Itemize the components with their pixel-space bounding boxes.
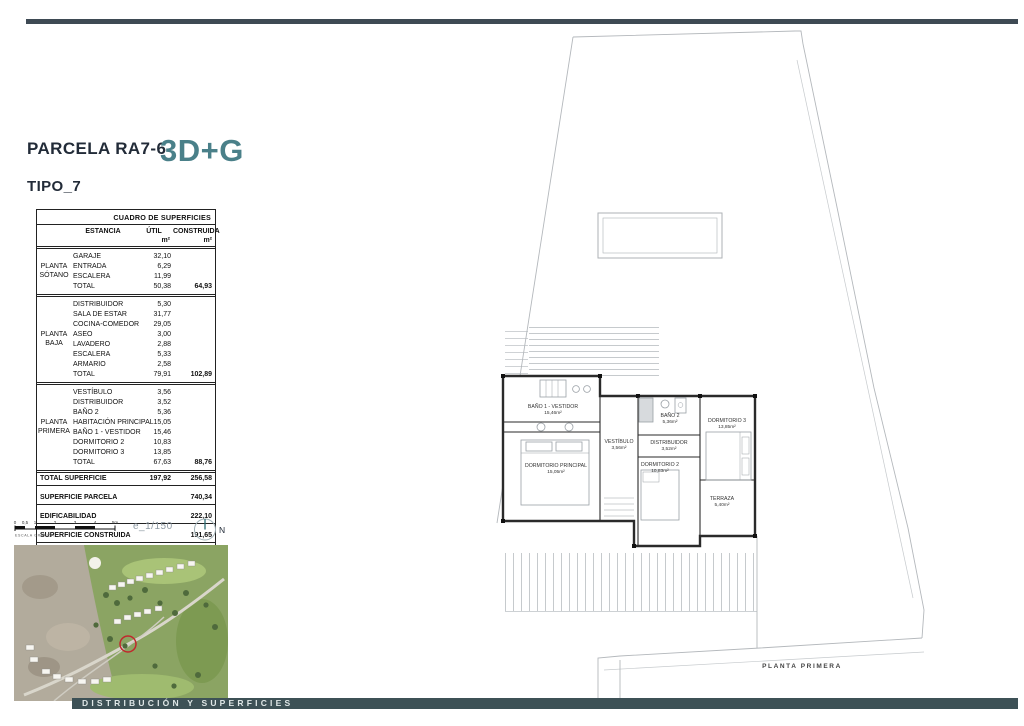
svg-text:13,85m²: 13,85m² (718, 424, 736, 430)
svg-text:5,36m²: 5,36m² (663, 419, 678, 425)
floor-plan-drawing: BAÑO 1 - VESTIDOR 15,46m² DORMITORIO PRI… (0, 0, 1024, 726)
parcel-boundary (497, 31, 924, 700)
room-dormitorio3: DORMITORIO 3 (708, 418, 746, 424)
house-outer-wall (503, 376, 755, 546)
svg-text:3,52m²: 3,52m² (662, 446, 677, 452)
plan-caption: PLANTA PRIMERA (762, 663, 842, 670)
svg-text:5,40m²: 5,40m² (715, 502, 730, 508)
room-banio2: BAÑO 2 (660, 412, 679, 419)
room-dormitorio2: DORMITORIO 2 (641, 462, 679, 468)
plan-sheet: PARCELA RA7-6 3D+G TIPO_7 CUADRO DE SUPE… (0, 0, 1024, 726)
footer-bar: DISTRIBUCIÓN Y SUPERFICIES (72, 698, 1018, 709)
svg-text:3,56m²: 3,56m² (612, 445, 627, 451)
room-distribuidor: DISTRIBUIDOR (650, 440, 687, 446)
room-dormitorio-principal: DORMITORIO PRINCIPAL (525, 463, 587, 469)
svg-text:15,46m²: 15,46m² (544, 410, 562, 416)
room-banio1-vestidor: BAÑO 1 - VESTIDOR (528, 403, 578, 410)
pool (598, 213, 722, 258)
footer-title: DISTRIBUCIÓN Y SUPERFICIES (82, 698, 293, 709)
svg-text:15,05m²: 15,05m² (547, 469, 565, 475)
room-vestibulo: VESTÍBULO (604, 438, 633, 445)
room-terraza: TERRAZA (710, 496, 735, 502)
svg-text:10,83m²: 10,83m² (651, 468, 669, 474)
